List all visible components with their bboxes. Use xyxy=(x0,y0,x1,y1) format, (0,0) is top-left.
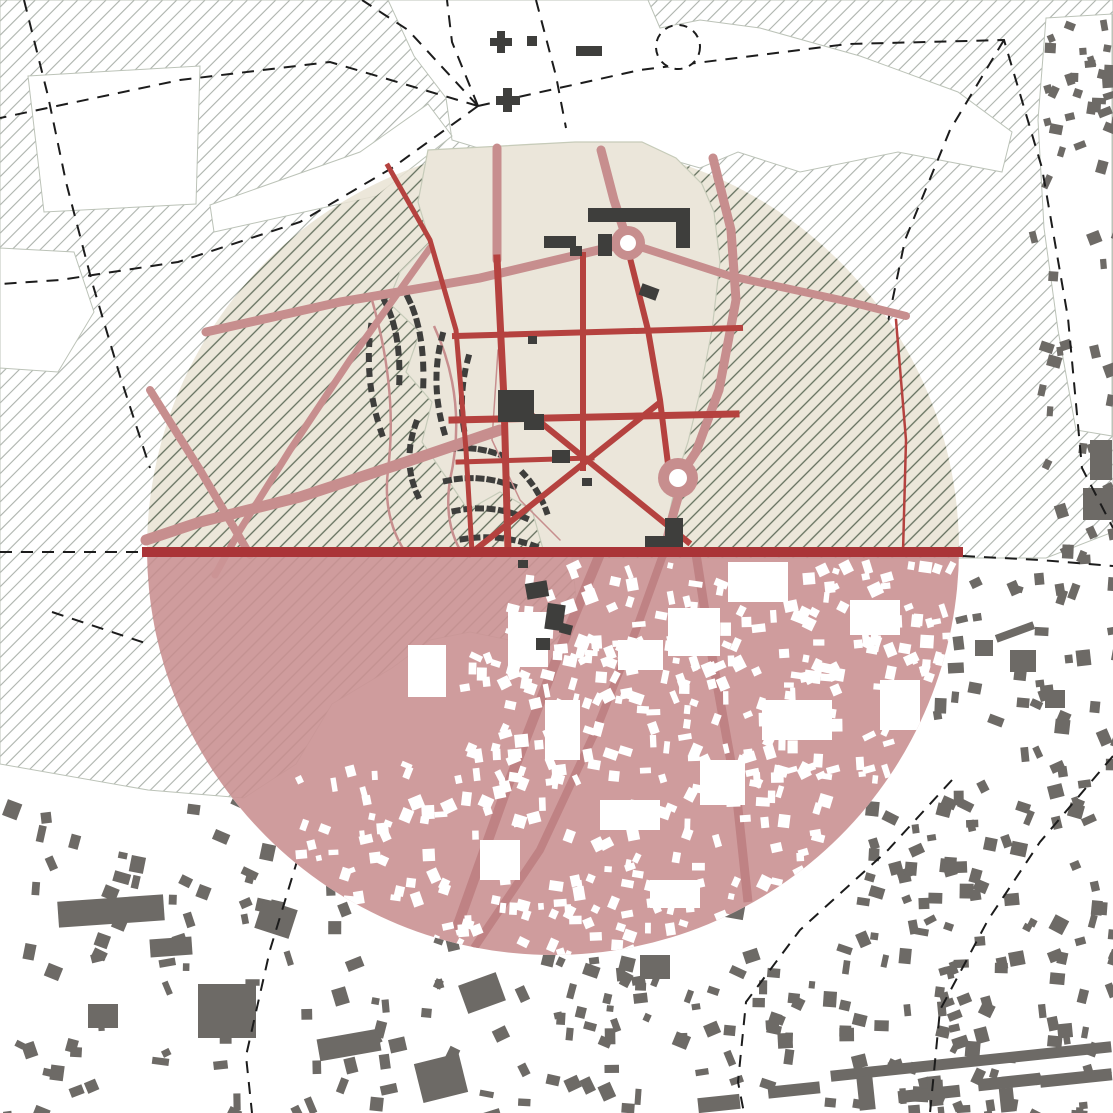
building-footprint xyxy=(565,1028,573,1041)
building-cutout xyxy=(740,815,751,823)
building-cutout xyxy=(826,708,836,718)
building-footprint xyxy=(1010,650,1036,672)
suburb-house xyxy=(407,444,414,454)
building-footprint xyxy=(640,955,670,979)
building-footprint xyxy=(1076,649,1092,666)
building-footprint xyxy=(1016,697,1029,708)
building-footprint xyxy=(1020,747,1029,762)
building-footprint xyxy=(874,1020,889,1031)
building-cutout xyxy=(802,572,815,585)
building-footprint xyxy=(788,993,801,1004)
building-footprint xyxy=(1084,60,1096,68)
building-footprint xyxy=(88,1004,118,1028)
building-footprint xyxy=(1064,654,1073,663)
building-footprint xyxy=(1004,893,1020,906)
building-footprint xyxy=(999,1087,1015,1112)
suburb-house xyxy=(433,372,439,381)
building-footprint xyxy=(31,882,40,896)
building-cutout xyxy=(590,932,602,941)
building-cutout xyxy=(788,740,798,753)
building-cutout xyxy=(646,709,660,715)
suburb-house xyxy=(419,346,426,357)
building-cutout xyxy=(760,817,769,829)
site-building xyxy=(570,246,582,256)
building-cutout xyxy=(551,765,557,775)
building-footprint xyxy=(937,1001,947,1016)
building-footprint xyxy=(421,1008,432,1018)
building-footprint xyxy=(556,1012,565,1025)
building-cutout xyxy=(586,650,593,663)
building-footprint xyxy=(605,1028,616,1044)
building-footprint xyxy=(301,1009,312,1020)
building-cutout xyxy=(683,719,691,729)
building-cutout xyxy=(473,768,481,781)
suburb-house xyxy=(395,346,402,357)
building-cutout xyxy=(872,775,878,784)
building-footprint xyxy=(1091,900,1103,916)
building-footprint xyxy=(985,1099,995,1112)
suburb-house xyxy=(434,399,441,409)
building-footprint xyxy=(723,1025,735,1036)
building-footprint xyxy=(1100,259,1107,269)
building-footprint xyxy=(1089,701,1100,713)
building-footprint xyxy=(634,1089,641,1105)
building-cutout xyxy=(328,849,338,855)
building-cutout xyxy=(920,635,934,649)
roundabout-island xyxy=(669,469,687,487)
building-cutout xyxy=(685,903,694,913)
building-footprint xyxy=(944,857,957,864)
building-footprint xyxy=(328,921,341,934)
building-footprint xyxy=(604,1065,619,1073)
building-footprint xyxy=(1035,627,1049,636)
site-building xyxy=(527,36,537,46)
building-cutout xyxy=(593,644,600,652)
building-footprint xyxy=(983,837,998,852)
site-building xyxy=(503,88,512,112)
building-footprint xyxy=(518,1098,531,1106)
suburb-house xyxy=(366,368,373,377)
suburb-house xyxy=(475,475,484,482)
building-cutout xyxy=(514,734,529,748)
building-cutout xyxy=(831,719,842,732)
building-footprint xyxy=(808,981,815,989)
building-footprint xyxy=(1076,1107,1084,1113)
building-cutout xyxy=(552,782,558,789)
building-cutout xyxy=(741,567,754,580)
building-footprint xyxy=(635,983,646,991)
building-footprint xyxy=(381,999,389,1013)
building-cutout xyxy=(768,790,776,803)
building-cutout xyxy=(572,886,585,901)
building-footprint xyxy=(1047,406,1054,416)
building-cutout xyxy=(892,615,902,628)
building-footprint xyxy=(952,636,964,651)
building-cutout xyxy=(539,797,546,811)
building-footprint xyxy=(966,820,978,828)
suburb-house xyxy=(367,383,374,393)
suburb-house xyxy=(434,358,441,368)
building-footprint xyxy=(198,984,256,1038)
building-cutout xyxy=(918,561,932,574)
building-footprint xyxy=(908,1105,920,1113)
dashed-circle-landmark xyxy=(656,25,700,69)
building-cutout xyxy=(784,691,792,701)
building-cutout xyxy=(406,878,416,888)
building-cutout xyxy=(802,654,809,662)
building-cutout xyxy=(684,705,691,714)
building-cutout xyxy=(823,722,833,731)
building-cutout xyxy=(372,771,378,780)
building-cutout xyxy=(913,613,923,626)
suburb-house xyxy=(396,360,402,370)
suburb-house xyxy=(396,375,402,385)
building-footprint xyxy=(213,1060,228,1070)
site-building xyxy=(528,336,537,344)
building-footprint xyxy=(621,1103,635,1113)
building-cutout xyxy=(898,643,911,655)
suburb-house xyxy=(420,362,426,372)
site-building xyxy=(576,46,602,56)
building-cutout xyxy=(853,639,862,648)
building-cutout xyxy=(421,805,435,819)
building-footprint xyxy=(606,1005,613,1012)
building-footprint xyxy=(633,992,648,1003)
building-footprint xyxy=(183,963,190,971)
building-cutout xyxy=(873,683,884,690)
building-footprint xyxy=(536,638,550,650)
suburb-house xyxy=(486,506,496,513)
building-cutout xyxy=(508,772,522,783)
building-cutout xyxy=(316,855,323,862)
building-footprint xyxy=(1008,950,1026,967)
building-cutout xyxy=(604,866,612,872)
building-footprint xyxy=(369,1097,383,1112)
building-footprint xyxy=(934,698,946,714)
building-footprint xyxy=(49,1064,64,1081)
building-cutout xyxy=(741,617,751,627)
building-cutout xyxy=(907,561,915,570)
building-cutout xyxy=(650,735,657,748)
building-cutout xyxy=(720,622,731,635)
building-footprint xyxy=(169,895,177,905)
building-cutout xyxy=(626,577,639,591)
building-footprint xyxy=(1038,1004,1047,1018)
building-cutout xyxy=(477,667,487,680)
building-cutout xyxy=(611,939,623,950)
building-cutout xyxy=(534,740,544,750)
building-footprint xyxy=(928,893,942,904)
building-cutout xyxy=(559,741,569,749)
site-building xyxy=(582,478,592,486)
building-footprint xyxy=(956,1105,970,1113)
building-cutout xyxy=(672,657,680,664)
site-building xyxy=(552,450,570,463)
suburb-house xyxy=(475,505,484,511)
roundabout-island xyxy=(620,235,636,251)
building-cutout xyxy=(746,592,752,599)
building-footprint xyxy=(951,691,959,703)
building-cutout xyxy=(684,818,690,830)
building-footprint xyxy=(839,1025,851,1036)
building-cutout xyxy=(472,830,479,839)
building-cutout xyxy=(690,628,701,638)
building-cutout xyxy=(595,671,607,683)
building-cutout xyxy=(501,852,508,860)
building-cutout xyxy=(499,875,510,885)
building-footprint xyxy=(752,998,765,1007)
building-footprint xyxy=(1048,271,1058,281)
building-footprint xyxy=(903,1004,911,1016)
building-footprint xyxy=(379,1054,391,1070)
building-cutout xyxy=(549,880,564,892)
building-cutout xyxy=(763,587,777,600)
building-cutout xyxy=(723,691,729,704)
building-cutout xyxy=(564,904,571,917)
building-cutout xyxy=(553,651,563,661)
building-cutout xyxy=(469,663,477,675)
building-cutout xyxy=(640,767,651,773)
map-canvas xyxy=(0,0,1113,1113)
building-footprint xyxy=(1034,573,1045,586)
building-footprint xyxy=(1104,65,1113,79)
suburb-house xyxy=(453,475,463,482)
building-footprint xyxy=(616,967,626,981)
building-cutout xyxy=(728,562,788,602)
building-footprint xyxy=(149,937,192,958)
building-cutout xyxy=(538,903,544,910)
building-cutout xyxy=(645,923,651,934)
building-cutout xyxy=(796,853,804,862)
site-building xyxy=(524,414,544,430)
building-footprint xyxy=(767,968,780,978)
building-footprint xyxy=(1054,719,1070,735)
building-footprint xyxy=(948,662,964,673)
suburb-house xyxy=(459,535,469,542)
building-cutout xyxy=(778,814,791,828)
building-cutout xyxy=(295,849,307,859)
building-cutout xyxy=(524,606,534,616)
building-footprint xyxy=(904,862,917,876)
building-cutout xyxy=(422,849,435,862)
building-footprint xyxy=(1103,44,1111,52)
building-footprint xyxy=(975,640,993,656)
building-footprint xyxy=(233,1093,240,1110)
building-footprint xyxy=(1045,43,1057,54)
building-footprint xyxy=(969,889,982,901)
site-building xyxy=(497,31,505,53)
building-cutout xyxy=(728,893,735,900)
building-footprint xyxy=(823,991,837,1007)
building-footprint xyxy=(918,898,929,909)
site-building xyxy=(598,234,612,256)
site-building xyxy=(588,208,690,222)
building-cutout xyxy=(692,863,705,871)
building-cutout xyxy=(759,713,773,727)
building-footprint xyxy=(1049,972,1065,985)
building-cutout xyxy=(608,770,620,782)
building-cutout xyxy=(491,895,501,905)
building-cutout xyxy=(821,673,832,681)
building-cutout xyxy=(858,771,866,777)
building-cutout xyxy=(408,645,446,697)
building-footprint xyxy=(1090,440,1112,480)
building-cutout xyxy=(770,610,777,623)
building-footprint xyxy=(1045,690,1065,708)
building-cutout xyxy=(778,738,785,751)
building-footprint xyxy=(898,948,911,964)
building-footprint xyxy=(912,824,920,834)
building-footprint xyxy=(972,613,982,622)
building-cutout xyxy=(499,903,506,914)
building-footprint xyxy=(1083,488,1113,520)
building-footprint xyxy=(589,957,600,965)
building-cutout xyxy=(813,639,824,645)
building-cutout xyxy=(461,791,472,806)
building-footprint xyxy=(824,1098,836,1108)
suburb-house xyxy=(366,353,372,362)
building-cutout xyxy=(665,922,676,936)
building-cutout xyxy=(369,852,381,864)
building-footprint xyxy=(371,997,380,1005)
building-cutout xyxy=(569,916,582,925)
building-cutout xyxy=(636,644,641,655)
site-building xyxy=(676,220,690,248)
suburb-house xyxy=(420,378,426,388)
building-cutout xyxy=(784,682,794,687)
site-analysis-map xyxy=(0,0,1113,1113)
building-cutout xyxy=(728,655,735,666)
building-cutout xyxy=(726,793,740,807)
building-footprint xyxy=(187,804,201,816)
building-footprint xyxy=(312,1060,321,1074)
building-footprint xyxy=(870,932,879,940)
building-footprint xyxy=(40,812,52,824)
section-cut-line xyxy=(142,547,963,557)
building-footprint xyxy=(1057,766,1068,778)
building-footprint xyxy=(1079,48,1087,55)
building-cutout xyxy=(509,902,517,915)
building-footprint xyxy=(518,560,528,568)
building-cutout xyxy=(689,642,703,655)
building-cutout xyxy=(824,581,835,593)
building-cutout xyxy=(376,822,389,834)
building-footprint xyxy=(1056,346,1063,356)
building-footprint xyxy=(70,1047,82,1057)
suburb-house xyxy=(433,385,440,394)
building-footprint xyxy=(777,1033,793,1049)
building-cutout xyxy=(464,915,471,924)
building-cutout xyxy=(751,623,766,633)
building-cutout xyxy=(779,649,790,659)
